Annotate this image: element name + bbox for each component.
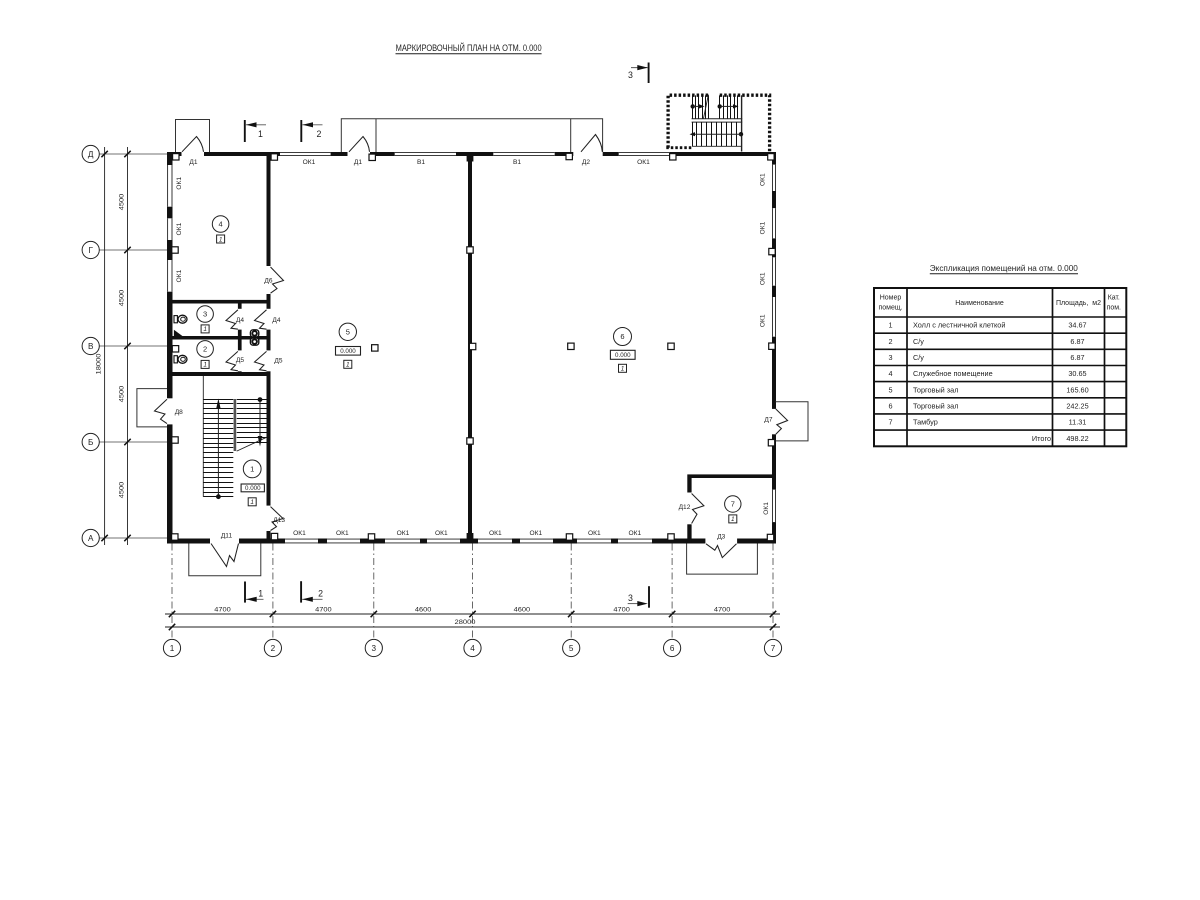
svg-text:30.65: 30.65 [1068, 369, 1086, 378]
svg-text:1: 1 [250, 499, 254, 506]
svg-text:ОК1: ОК1 [763, 502, 770, 515]
svg-text:4500: 4500 [118, 386, 125, 403]
svg-text:Служебное помещение: Служебное помещение [913, 369, 993, 378]
svg-text:3: 3 [628, 70, 633, 80]
svg-text:А: А [88, 534, 94, 543]
svg-text:ОК1: ОК1 [176, 177, 183, 190]
svg-text:Г: Г [88, 246, 93, 255]
svg-text:ОК1: ОК1 [760, 314, 767, 327]
svg-text:0.000: 0.000 [340, 348, 356, 355]
svg-text:Б: Б [88, 438, 93, 447]
svg-text:2: 2 [316, 129, 321, 139]
svg-text:4700: 4700 [714, 607, 731, 614]
svg-text:Торговый зал: Торговый зал [913, 402, 958, 411]
svg-text:3: 3 [888, 353, 892, 362]
svg-text:В1: В1 [417, 159, 425, 166]
svg-text:Д4: Д4 [236, 317, 244, 324]
svg-text:С/у: С/у [913, 353, 924, 362]
svg-text:5: 5 [346, 327, 350, 336]
svg-text:28000: 28000 [455, 619, 476, 626]
svg-text:1: 1 [346, 362, 350, 369]
svg-text:4700: 4700 [613, 607, 630, 614]
svg-text:Д3: Д3 [717, 534, 725, 541]
svg-text:11.31: 11.31 [1069, 418, 1087, 427]
svg-text:3: 3 [628, 593, 633, 603]
svg-text:Кат.: Кат. [1108, 295, 1120, 302]
svg-text:С/у: С/у [913, 337, 924, 346]
svg-text:165.60: 165.60 [1066, 385, 1088, 394]
svg-text:4600: 4600 [514, 607, 531, 614]
svg-text:5: 5 [888, 385, 892, 394]
svg-text:ОК1: ОК1 [489, 530, 502, 537]
svg-text:4600: 4600 [415, 607, 432, 614]
svg-text:1: 1 [621, 366, 625, 373]
svg-text:498.22: 498.22 [1066, 434, 1088, 443]
svg-text:7: 7 [731, 500, 735, 509]
svg-text:Торговый зал: Торговый зал [913, 385, 958, 394]
svg-text:4500: 4500 [118, 290, 125, 307]
svg-text:Д11: Д11 [221, 533, 233, 540]
svg-text:1: 1 [170, 644, 175, 653]
svg-text:4500: 4500 [118, 194, 125, 211]
svg-text:4: 4 [470, 644, 475, 653]
svg-text:ОК1: ОК1 [637, 159, 650, 166]
svg-text:1: 1 [888, 321, 892, 330]
svg-text:1: 1 [250, 465, 254, 474]
svg-text:0.000: 0.000 [615, 352, 631, 359]
svg-text:ОК1: ОК1 [435, 530, 448, 537]
svg-text:2: 2 [318, 589, 323, 599]
svg-text:Д1: Д1 [354, 159, 362, 166]
svg-text:ОК1: ОК1 [293, 530, 306, 537]
svg-text:Д13: Д13 [273, 517, 285, 524]
svg-text:ОК1: ОК1 [303, 159, 316, 166]
svg-text:4700: 4700 [214, 607, 231, 614]
svg-text:Д6: Д6 [264, 278, 272, 285]
svg-text:ОК1: ОК1 [588, 530, 601, 537]
svg-text:ОК1: ОК1 [529, 530, 542, 537]
svg-text:Д12: Д12 [679, 504, 691, 511]
svg-text:ОК1: ОК1 [397, 530, 410, 537]
svg-text:2: 2 [888, 337, 892, 346]
svg-text:ОК1: ОК1 [760, 272, 767, 285]
svg-text:1: 1 [219, 236, 223, 243]
svg-text:4: 4 [219, 220, 223, 229]
svg-text:ОК1: ОК1 [176, 269, 183, 282]
svg-text:0.000: 0.000 [245, 485, 261, 492]
svg-text:1: 1 [258, 589, 263, 599]
svg-text:Д7: Д7 [764, 417, 772, 424]
svg-text:6.87: 6.87 [1070, 337, 1084, 346]
svg-text:ОК1: ОК1 [760, 221, 767, 234]
svg-text:Наименование: Наименование [955, 300, 1004, 307]
svg-text:242.25: 242.25 [1066, 402, 1088, 411]
svg-text:Д8: Д8 [175, 409, 183, 416]
svg-text:1: 1 [203, 362, 207, 369]
svg-text:7: 7 [888, 418, 892, 427]
svg-text:ОК1: ОК1 [176, 222, 183, 235]
svg-text:В: В [88, 342, 94, 351]
svg-text:В1: В1 [513, 159, 521, 166]
svg-text:Номер: Номер [880, 295, 902, 302]
svg-text:6: 6 [670, 644, 675, 653]
svg-text:пом.: пом. [1107, 305, 1121, 312]
svg-text:4: 4 [888, 369, 892, 378]
svg-text:2: 2 [203, 345, 207, 354]
svg-text:4500: 4500 [118, 482, 125, 499]
svg-text:МАРКИРОВОЧНЫЙ ПЛАН НА ОТМ. 0.0: МАРКИРОВОЧНЫЙ ПЛАН НА ОТМ. 0.000 [396, 42, 542, 53]
svg-text:Экспликация помещений на отм.: Экспликация помещений на отм. 0.000 [930, 263, 1078, 273]
svg-text:6: 6 [888, 402, 892, 411]
svg-text:3: 3 [203, 310, 207, 319]
svg-text:6.87: 6.87 [1070, 353, 1084, 362]
svg-text:помещ.: помещ. [878, 305, 902, 312]
svg-text:2: 2 [271, 644, 276, 653]
svg-text:Холл с лестничной клеткой: Холл с лестничной клеткой [913, 321, 1005, 330]
svg-text:Итого: Итого [1032, 434, 1051, 443]
svg-text:ОК1: ОК1 [760, 173, 767, 186]
svg-text:1: 1 [258, 129, 263, 139]
svg-text:3: 3 [372, 644, 377, 653]
svg-text:Д5: Д5 [274, 358, 282, 365]
svg-text:5: 5 [569, 644, 574, 653]
svg-text:Д1: Д1 [189, 159, 197, 166]
svg-text:Д4: Д4 [272, 317, 280, 324]
svg-text:1: 1 [731, 516, 735, 523]
svg-text:Д5: Д5 [236, 357, 244, 364]
svg-text:ОК1: ОК1 [336, 530, 349, 537]
svg-text:4700: 4700 [315, 607, 332, 614]
svg-text:Площадь, м2: Площадь, м2 [1056, 300, 1101, 307]
svg-text:7: 7 [771, 644, 776, 653]
svg-text:Тамбур: Тамбур [913, 418, 938, 427]
svg-text:18000: 18000 [95, 353, 102, 374]
svg-text:Д: Д [88, 150, 94, 159]
svg-text:Д2: Д2 [582, 159, 590, 166]
svg-text:34.67: 34.67 [1068, 321, 1086, 330]
svg-text:6: 6 [620, 332, 624, 341]
svg-text:ОК1: ОК1 [628, 530, 641, 537]
svg-text:1: 1 [203, 326, 207, 333]
